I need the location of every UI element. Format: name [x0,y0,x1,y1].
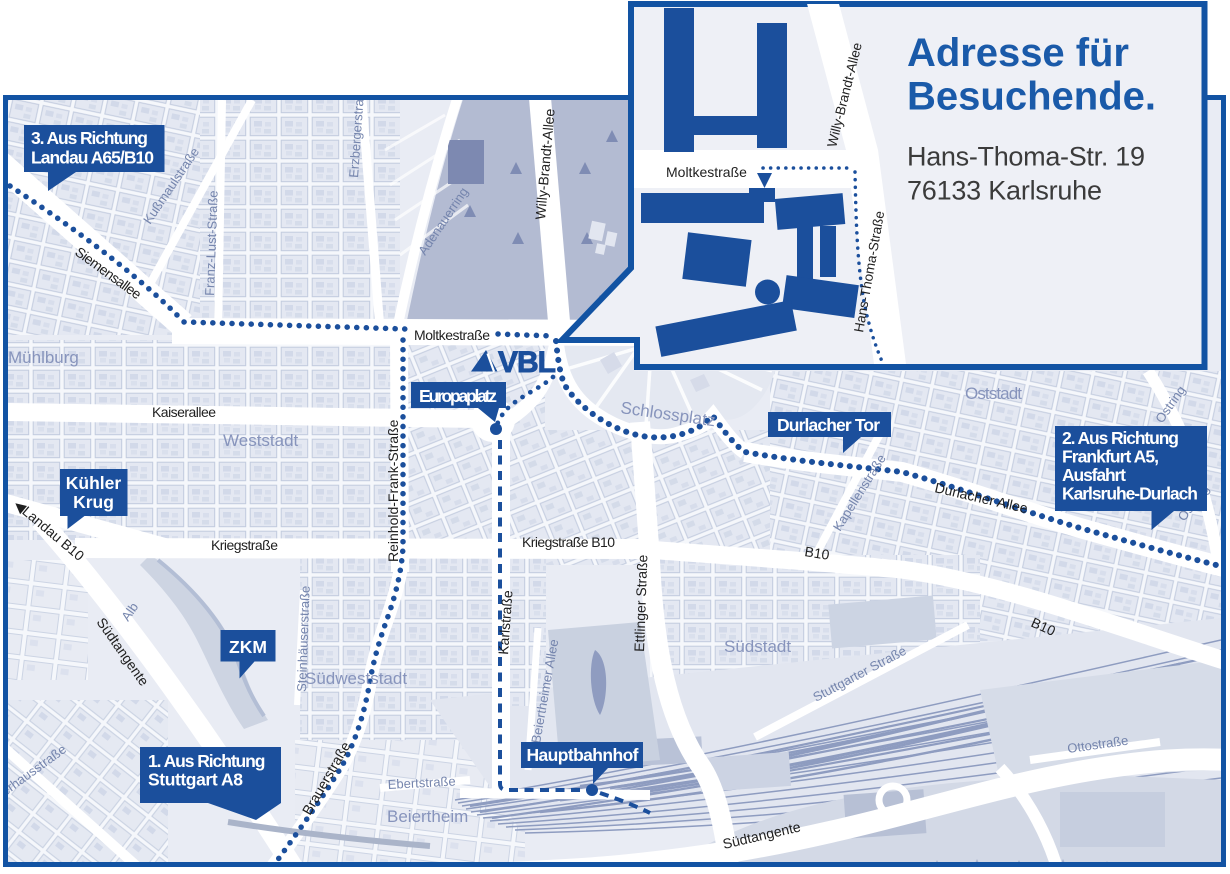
svg-text:Reinhold-Frank-Straße: Reinhold-Frank-Straße [385,419,401,562]
svg-text:Oststadt: Oststadt [965,384,1022,403]
svg-text:Weststadt: Weststadt [223,431,299,450]
svg-text:Südstadt: Südstadt [724,637,791,656]
svg-text:76133 Karlsruhe: 76133 Karlsruhe [907,176,1102,206]
svg-text:2. Aus Richtung: 2. Aus Richtung [1062,428,1179,448]
svg-text:Stuttgart A8: Stuttgart A8 [148,770,243,790]
svg-text:Kühler: Kühler [66,473,122,493]
svg-text:Besuchende.: Besuchende. [907,75,1156,119]
svg-text:Hans-Thoma-Str. 19: Hans-Thoma-Str. 19 [907,142,1145,172]
svg-text:Kaiserallee: Kaiserallee [152,404,216,420]
svg-text:1. Aus Richtung: 1. Aus Richtung [148,751,266,771]
svg-text:Landau A65/B10: Landau A65/B10 [31,148,154,168]
svg-text:Karlsruhe-Durlach: Karlsruhe-Durlach [1062,484,1198,504]
svg-text:Ausfahrt: Ausfahrt [1062,465,1126,485]
svg-text:ZKM: ZKM [229,637,267,657]
svg-text:Mühlburg: Mühlburg [8,348,79,367]
svg-text:Krug: Krug [73,492,114,512]
svg-text:Moltkestraße: Moltkestraße [666,164,747,180]
svg-text:Frankfurt A5,: Frankfurt A5, [1062,447,1159,467]
svg-text:Moltkestraße: Moltkestraße [414,327,490,343]
svg-text:Adresse für: Adresse für [907,31,1129,75]
svg-text:Ettlinger Straße: Ettlinger Straße [631,554,650,652]
svg-text:VBL: VBL [498,346,556,379]
svg-text:3. Aus Richtung: 3. Aus Richtung [31,128,148,148]
svg-text:Durlacher Tor: Durlacher Tor [777,415,880,435]
svg-text:Kriegstraße: Kriegstraße [211,537,278,553]
svg-text:Hauptbahnhof: Hauptbahnhof [527,745,639,765]
svg-text:Kriegstraße B10: Kriegstraße B10 [522,534,615,550]
svg-text:Beiertheim: Beiertheim [387,807,468,826]
svg-text:Südweststadt: Südweststadt [305,669,407,688]
svg-text:Europaplatz: Europaplatz [419,386,497,406]
